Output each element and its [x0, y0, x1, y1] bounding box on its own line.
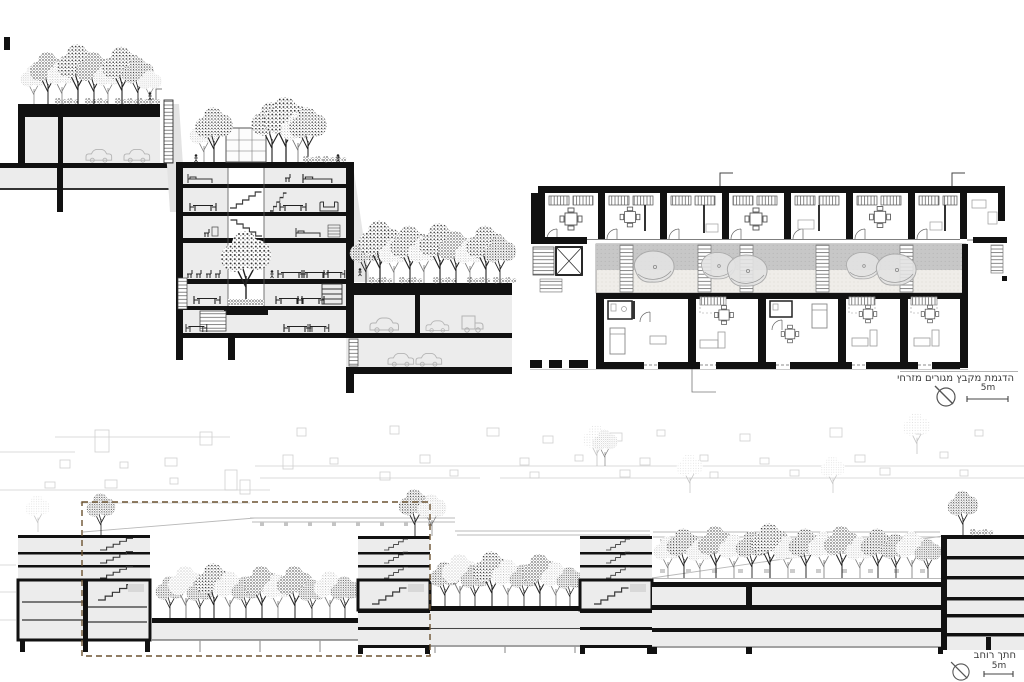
architectural-sheet: הדגמת מקבץ מגורים מזרחי 5m חתך רוחב 5m	[0, 0, 1024, 682]
north-arrow-icon	[935, 386, 955, 406]
section-deck	[652, 523, 943, 654]
roof-trees-left	[21, 44, 162, 104]
drawing-canvas	[0, 0, 1024, 682]
section-courtyard-2	[430, 551, 584, 653]
plan-tree-canopy	[727, 255, 767, 286]
street-section-scale-label: 5m	[984, 661, 1014, 671]
plan-leader-flags	[720, 173, 965, 186]
courtyard-strip	[596, 244, 968, 293]
section-courtyard-1	[152, 563, 359, 652]
north-arrow-icon	[951, 662, 969, 680]
parking-section	[346, 172, 516, 374]
section-tower-3	[580, 536, 652, 654]
plan-tree-canopy	[847, 252, 881, 278]
tower-section	[176, 97, 354, 393]
building-section-drawing	[0, 37, 516, 393]
floor-plan-drawing	[530, 173, 1018, 406]
closet-strips	[549, 196, 957, 205]
street-section-caption: חתך רוחב	[974, 650, 1016, 661]
exterior-ladder	[164, 100, 173, 163]
section-tower-1	[18, 493, 150, 652]
section-wall-stub	[4, 37, 10, 50]
section-right-building	[941, 491, 1024, 650]
plan-scale-label: 5m	[970, 383, 1006, 393]
section-scale-bar	[984, 671, 1013, 677]
plan-scale-bar	[967, 396, 1008, 402]
plan-tree-canopy	[634, 251, 674, 282]
street-section-drawing	[0, 413, 1024, 680]
plan-tree-canopy	[876, 254, 916, 285]
